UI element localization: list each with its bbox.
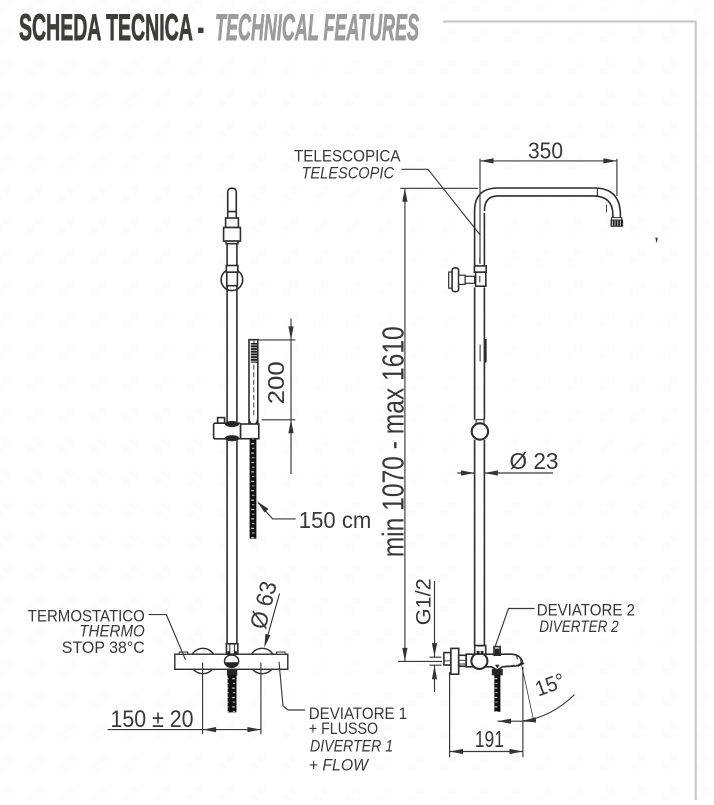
svg-text:G1/2: G1/2 xyxy=(413,578,436,625)
svg-text:Ø 23: Ø 23 xyxy=(510,448,559,474)
svg-text:200: 200 xyxy=(263,361,289,404)
svg-text:+ FLOW: + FLOW xyxy=(309,755,370,774)
svg-text:DIVERTER 2: DIVERTER 2 xyxy=(539,617,619,636)
svg-text:150 cm: 150 cm xyxy=(299,507,372,533)
svg-text:SCHEDA TECNICA -: SCHEDA TECNICA - xyxy=(19,6,204,48)
svg-text:+ FLUSSO: + FLUSSO xyxy=(309,719,378,738)
svg-text:TECHNICAL FEATURES: TECHNICAL FEATURES xyxy=(215,6,419,48)
svg-text:350: 350 xyxy=(528,138,563,164)
svg-text:150 ± 20: 150 ± 20 xyxy=(111,706,194,733)
svg-text:191: 191 xyxy=(475,726,504,752)
svg-text:TELESCOPIC: TELESCOPIC xyxy=(302,163,395,182)
svg-text:STOP 38°C: STOP 38°C xyxy=(62,638,145,657)
svg-text:DIVERTER 1: DIVERTER 1 xyxy=(310,737,393,756)
svg-text:min 1070 - max 1610: min 1070 - max 1610 xyxy=(375,326,410,557)
